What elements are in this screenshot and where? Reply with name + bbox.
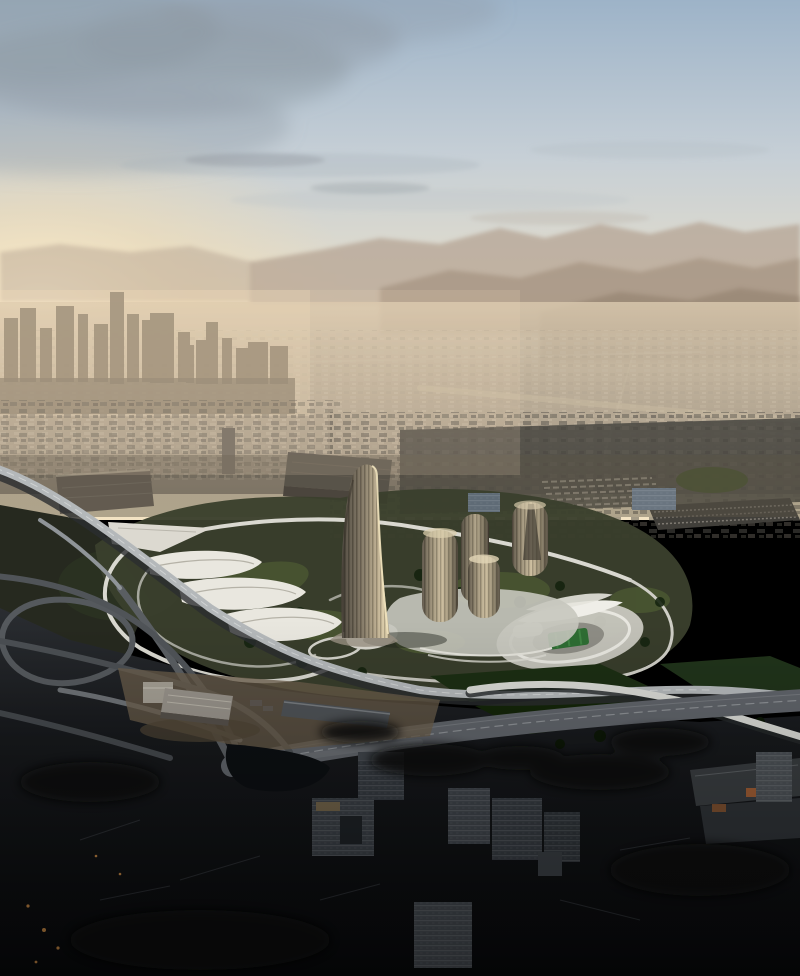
bottom-vignette [0, 620, 800, 976]
warm-haze-overlay [0, 290, 520, 475]
tower-rim-highlight [423, 528, 457, 538]
tower-cylinder-short [468, 555, 500, 619]
tower-right-split [512, 501, 548, 577]
tower-rim-highlight [469, 555, 499, 564]
aerial-city-render [0, 0, 800, 976]
tower-cylinder-main [422, 528, 458, 622]
render-canvas [0, 0, 800, 976]
